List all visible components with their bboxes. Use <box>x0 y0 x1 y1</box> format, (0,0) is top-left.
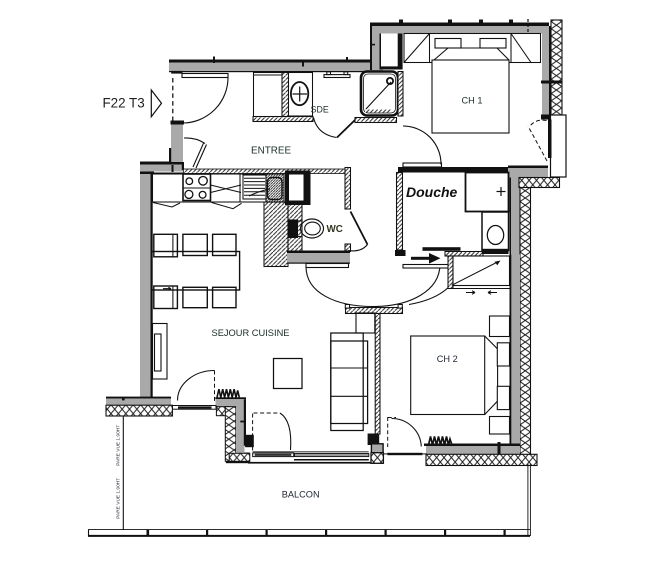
svg-text:PARE VUE 1.90HT: PARE VUE 1.90HT <box>116 478 122 519</box>
svg-text:PARE VUE 1.90HT: PARE VUE 1.90HT <box>116 425 122 466</box>
svg-text:WC: WC <box>327 224 343 235</box>
svg-text:CH 2: CH 2 <box>437 354 458 364</box>
svg-text:BALCON: BALCON <box>282 489 320 499</box>
svg-text:Douche: Douche <box>406 184 458 200</box>
svg-text:CH 1: CH 1 <box>462 96 483 106</box>
svg-text:F22 T3: F22 T3 <box>103 96 145 111</box>
svg-text:SEJOUR CUISINE: SEJOUR CUISINE <box>212 328 290 338</box>
svg-text:ENTREE: ENTREE <box>251 145 291 156</box>
svg-text:SDE: SDE <box>311 105 329 115</box>
